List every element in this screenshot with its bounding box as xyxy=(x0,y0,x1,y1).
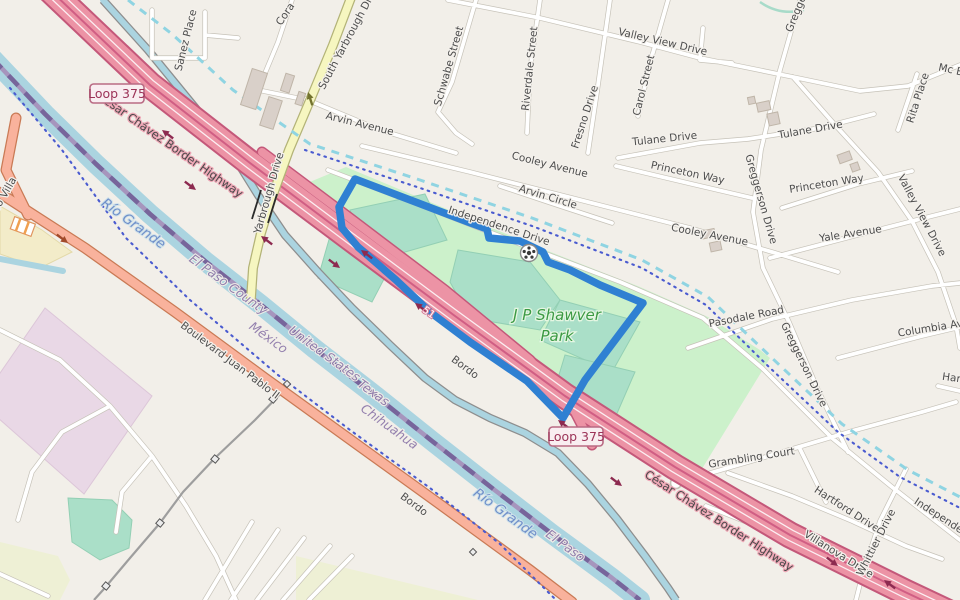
map-viewport[interactable]: Sanez Place Cora South Yarbrough Drive Y… xyxy=(0,0,960,600)
route-badge-label: Loop 375 xyxy=(88,86,146,101)
route-badge-loop375: Loop 375 xyxy=(547,427,605,446)
route-badge-loop375: Loop 375 xyxy=(88,84,146,103)
map-canvas[interactable]: Sanez Place Cora South Yarbrough Drive Y… xyxy=(0,0,960,600)
route-badge-label: Loop 375 xyxy=(547,429,605,444)
svg-text:Park: Park xyxy=(540,327,574,345)
sports-pitch-icon xyxy=(521,245,538,262)
svg-text:J P Shawver: J P Shawver xyxy=(510,306,602,324)
